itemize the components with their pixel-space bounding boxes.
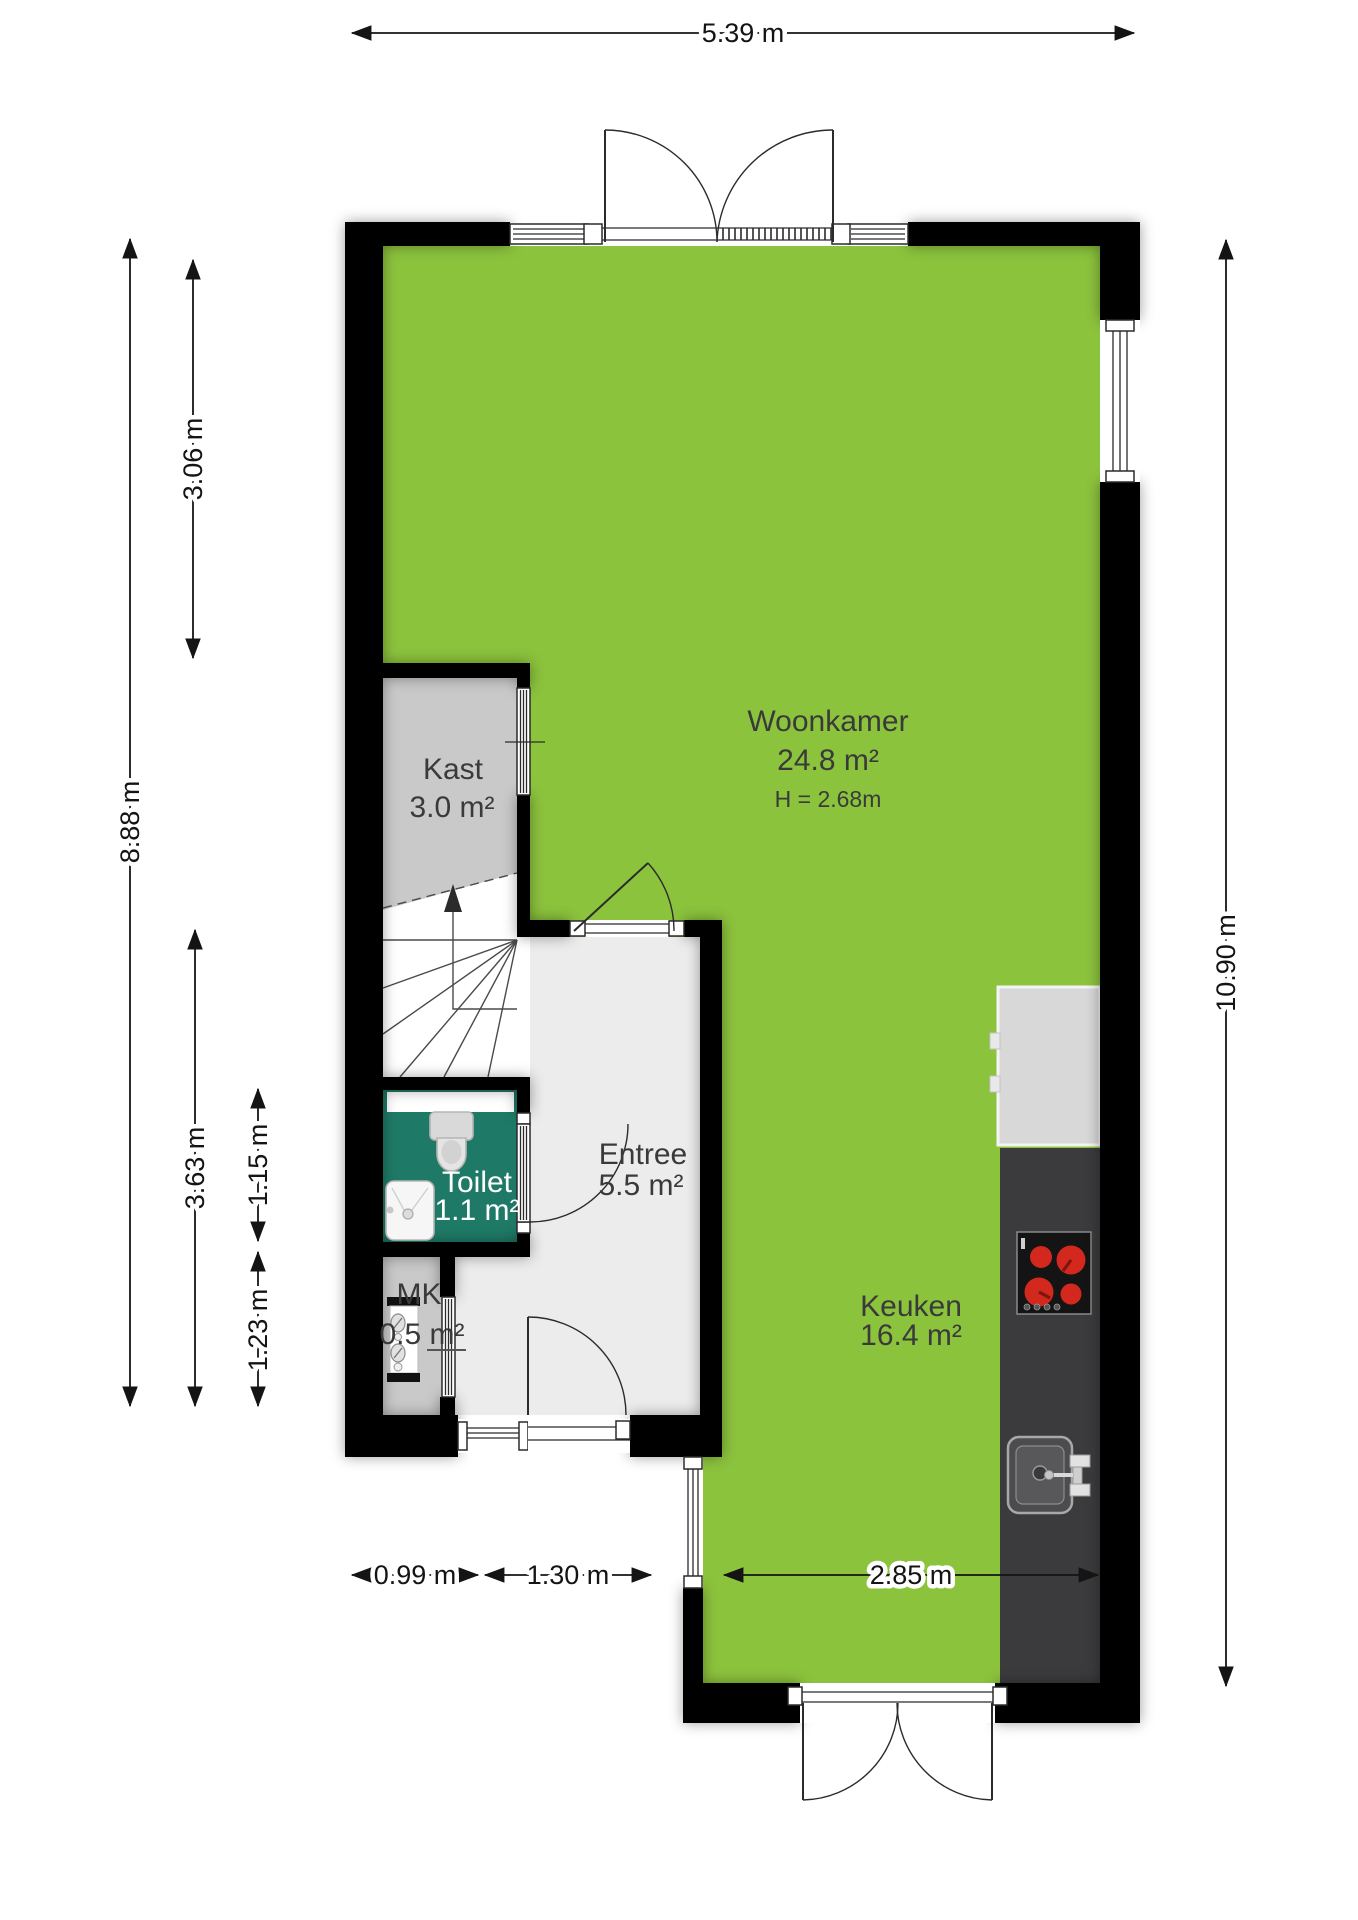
label-entree-area: 5.5 m² (598, 1169, 683, 1202)
window-lower-left-wall (683, 1457, 703, 1588)
floor-plan: Woonkamer 24.8 m² H = 2.68m Keuken 16.4 … (0, 0, 1358, 1920)
dim-right-total: 10.90 m (1211, 914, 1241, 1012)
label-toilet-area: 1.1 m² (434, 1194, 519, 1227)
dim-toilet-height: 1.15 m (243, 1124, 273, 1207)
label-keuken-area: 16.4 m² (860, 1319, 962, 1352)
label-kast: Kast (423, 753, 484, 786)
stove (1017, 1232, 1091, 1314)
floor-plan-page: Woonkamer 24.8 m² H = 2.68m Keuken 16.4 … (0, 0, 1358, 1920)
floors (383, 246, 1100, 1683)
cabinet-handle (990, 1076, 1000, 1092)
kitchen-counter (1000, 1148, 1100, 1683)
burner (1061, 1284, 1082, 1305)
kitchen-fixtures (990, 987, 1100, 1683)
label-mk: MK (397, 1278, 442, 1311)
double-door-top (584, 130, 850, 244)
label-entree: Entree (599, 1138, 687, 1171)
label-woonkamer-area: 24.8 m² (777, 744, 879, 777)
dim-left-lower: 3.63 m (180, 1127, 210, 1210)
label-woonkamer-height: H = 2.68m (775, 786, 882, 812)
label-kast-area: 3.0 m² (409, 791, 494, 824)
burner (1030, 1246, 1052, 1268)
dim-mk-height: 1.23 m (243, 1289, 273, 1372)
toilet-shelf (387, 1092, 514, 1112)
window-right-wall (1100, 320, 1140, 482)
faucet (1070, 1455, 1090, 1467)
cabinet-handle (990, 1033, 1000, 1049)
dim-bottom-right: 2.85 m (870, 1560, 953, 1590)
fridge-cabinet (998, 987, 1100, 1145)
label-mk-area: 0.5 m² (379, 1318, 464, 1351)
toilet-sink (386, 1181, 434, 1240)
double-door-bottom (788, 1683, 1007, 1800)
dim-left-upper: 3.06 m (178, 418, 208, 501)
window-front-sidelight (458, 1419, 528, 1453)
sink-drain (403, 1209, 413, 1219)
dim-bottom-middle: 1.30 m (527, 1560, 610, 1590)
label-woonkamer: Woonkamer (747, 705, 908, 738)
dim-bottom-left: 0.99 m (374, 1560, 457, 1590)
window-top-right (848, 224, 908, 244)
faucet (1070, 1484, 1090, 1496)
dim-top-width: 5.39 m (702, 18, 785, 48)
window-top-left (510, 224, 588, 244)
dim-left-total: 8.88 m (115, 781, 145, 864)
